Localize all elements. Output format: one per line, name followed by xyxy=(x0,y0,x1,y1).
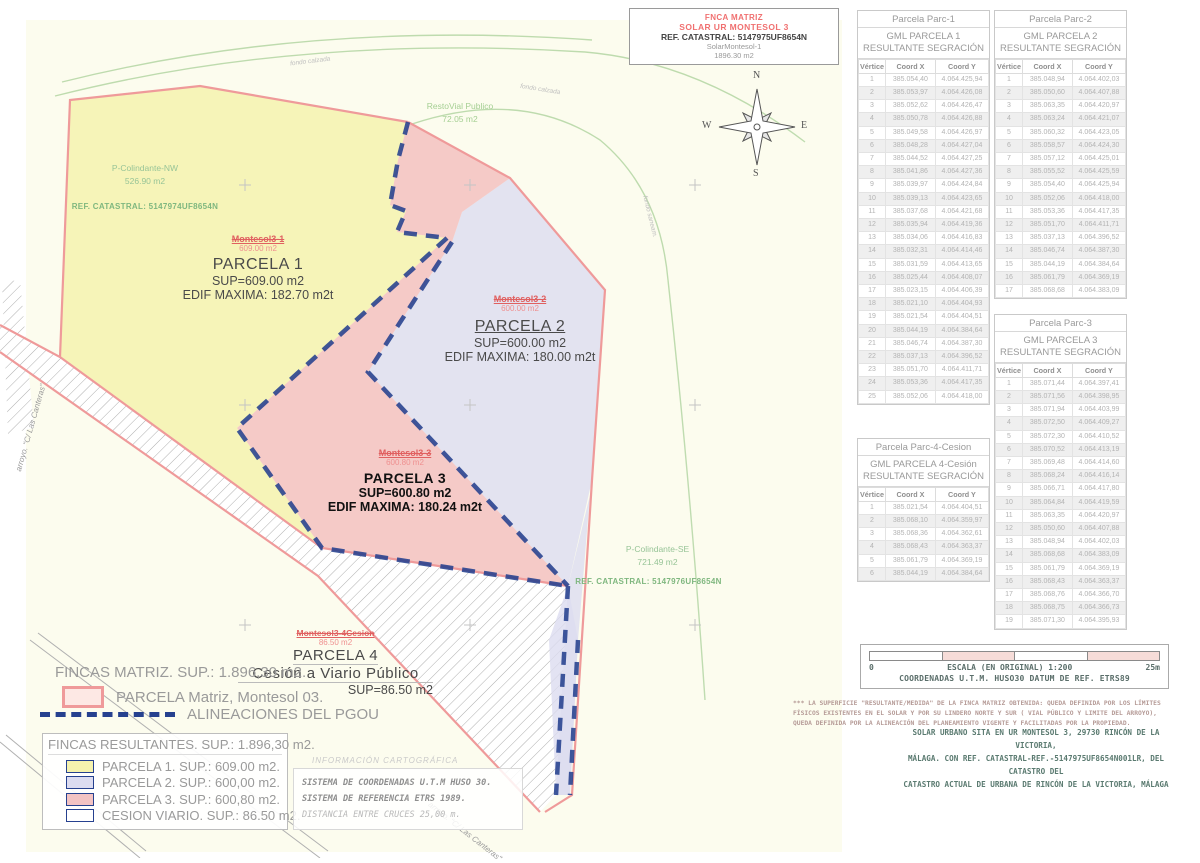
table-cell: 4.064.404,51 xyxy=(935,311,988,324)
table-cell: 385.034,06 xyxy=(885,232,935,245)
colindante-se-label: P-Colindante-SE 721.49 m2 REF. CATASTRAL… xyxy=(585,543,730,586)
table-row: 5385.060,324.064.423,05 xyxy=(996,126,1126,139)
table-cell: 4.064.407,88 xyxy=(1072,86,1125,99)
table-cell: 385.071,56 xyxy=(1022,390,1072,403)
table-cell: 4.064.384,64 xyxy=(1072,258,1125,271)
table-cell: 4.064.402,03 xyxy=(1072,73,1125,86)
scale-zero: 0 xyxy=(869,663,874,672)
table-row: 25385.052,064.064.418,00 xyxy=(859,390,989,403)
coord-table-parc1: Parcela Parc-1GML PARCELA 1 RESULTANTE S… xyxy=(857,10,990,405)
table-cell: 385.063,35 xyxy=(1022,509,1072,522)
table-cell: 4.064.396,52 xyxy=(1072,232,1125,245)
table-row: 5385.049,584.064.426,97 xyxy=(859,126,989,139)
table-cell: 385.048,28 xyxy=(885,139,935,152)
table-cell: 4.064.363,37 xyxy=(935,541,988,554)
parcela-3-label: Montesol3-3 600.80 m2 PARCELA 3 SUP=600.… xyxy=(300,448,510,514)
table-row: 6385.048,284.064.427,04 xyxy=(859,139,989,152)
table-cell: 4.064.402,03 xyxy=(1072,536,1125,549)
table-cell: 385.054,40 xyxy=(885,73,935,86)
table-row: 5385.072,304.064.410,52 xyxy=(996,430,1126,443)
table-cell: 18 xyxy=(996,602,1023,615)
table-cell: 9 xyxy=(996,179,1023,192)
table-row: 1385.071,444.064.397,41 xyxy=(996,377,1126,390)
table-cell: 385.037,13 xyxy=(1022,232,1072,245)
table-cell: 4.064.403,99 xyxy=(1072,404,1125,417)
table-cell: 4.064.404,51 xyxy=(935,501,988,514)
table-cell: 385.044,19 xyxy=(885,324,935,337)
table-cell: 10 xyxy=(996,496,1023,509)
finca-matriz-line1: FNCA MATRIZ xyxy=(632,13,836,22)
table-row: 23385.051,704.064.411,71 xyxy=(859,364,989,377)
table-row: 12385.051,704.064.411,71 xyxy=(996,218,1126,231)
carto-line2: SISTEMA DE REFERENCIA ETRS 1989. xyxy=(302,791,514,807)
table-row: 4385.063,244.064.421,07 xyxy=(996,113,1126,126)
table-row: 13385.048,944.064.402,03 xyxy=(996,536,1126,549)
finca-matriz-line2: SOLAR UR MONTESOL 3 xyxy=(632,22,836,32)
table-row: 19385.021,544.064.404,51 xyxy=(859,311,989,324)
table-cell: 1 xyxy=(996,377,1023,390)
column-header: Vértice xyxy=(859,487,886,501)
parcela2-swatch xyxy=(66,776,94,789)
column-header: Coord Y xyxy=(935,487,988,501)
column-header: Coord X xyxy=(885,59,935,73)
table-cell: 7 xyxy=(859,152,886,165)
table-cell: 385.037,13 xyxy=(885,351,935,364)
table-cell: 17 xyxy=(996,285,1023,298)
table-cell: 385.044,19 xyxy=(1022,258,1072,271)
table-cell: 19 xyxy=(859,311,886,324)
table-cell: 4.064.369,19 xyxy=(1072,271,1125,284)
cesion-swatch xyxy=(66,809,94,822)
table-row: 7385.044,524.064.427,25 xyxy=(859,152,989,165)
table-cell: 8 xyxy=(996,166,1023,179)
table-cell: 22 xyxy=(859,351,886,364)
table-row: 10385.052,064.064.418,00 xyxy=(996,192,1126,205)
column-header: Coord X xyxy=(1022,363,1072,377)
finca-matriz-name: SolarMontesol-1 xyxy=(632,42,836,51)
table-cell: 385.044,52 xyxy=(885,152,935,165)
table-cell: 385.068,10 xyxy=(885,514,935,527)
table-row: 6385.044,194.064.384,64 xyxy=(859,567,989,580)
table-row: 22385.037,134.064.396,52 xyxy=(859,351,989,364)
compass-east-label: E xyxy=(801,120,807,131)
table-cell: 385.054,40 xyxy=(1022,179,1072,192)
table-cell: 15 xyxy=(996,258,1023,271)
plan-sheet: { "title_block": { "line1": "FNCA MATRIZ… xyxy=(0,0,1200,858)
table-cell: 2 xyxy=(996,390,1023,403)
table-cell: 4.064.426,08 xyxy=(935,86,988,99)
table-cell: 4.064.419,59 xyxy=(1072,496,1125,509)
table-cell: 7 xyxy=(996,152,1023,165)
table-cell: 6 xyxy=(859,567,886,580)
carto-info-box: SISTEMA DE COORDENADAS U.T.M HUSO 30. SI… xyxy=(293,768,523,830)
legend-parcela-matriz-row: PARCELA Matriz, Montesol 03. xyxy=(62,686,323,708)
table-row: 2385.071,564.064.398,95 xyxy=(996,390,1126,403)
legend-parcela-matriz-label: PARCELA Matriz, Montesol 03. xyxy=(116,689,323,706)
table-cell: 385.055,52 xyxy=(1022,166,1072,179)
table-row: 8385.055,524.064.425,59 xyxy=(996,166,1126,179)
table-cell: 4.064.397,41 xyxy=(1072,377,1125,390)
table-cell: 4.064.407,88 xyxy=(1072,522,1125,535)
table-cell: 4.064.426,88 xyxy=(935,113,988,126)
table-cell: 385.063,24 xyxy=(1022,113,1072,126)
pgou-dash-sample xyxy=(40,712,175,717)
table-cell: 4.064.366,70 xyxy=(1072,589,1125,602)
table-cell: 385.025,44 xyxy=(885,271,935,284)
table-cell: 3 xyxy=(859,100,886,113)
table-cell: 4.064.424,84 xyxy=(935,179,988,192)
table-cell: 4 xyxy=(996,417,1023,430)
table-cell: 3 xyxy=(996,100,1023,113)
table-cell: 4.064.414,46 xyxy=(935,245,988,258)
table-cell: 4.064.384,64 xyxy=(935,324,988,337)
table-row: 6385.058,574.064.424,30 xyxy=(996,139,1126,152)
table-row: 2385.068,104.064.359,97 xyxy=(859,514,989,527)
table-row: 4385.072,504.064.409,27 xyxy=(996,417,1126,430)
table-row: 16385.025,444.064.408,07 xyxy=(859,271,989,284)
table-cell: 4.064.421,68 xyxy=(935,205,988,218)
parcela-1-label: Montesol3-1 609.00 m2 PARCELA 1 SUP=609.… xyxy=(158,234,358,302)
parcela-2-label: Montesol3-2 600.00 m2 PARCELA 2 SUP=600.… xyxy=(420,294,620,364)
table-row: 3385.071,944.064.403,99 xyxy=(996,404,1126,417)
table-cell: 6 xyxy=(859,139,886,152)
table-cell: 8 xyxy=(996,470,1023,483)
carto-line3: DISTANCIA ENTRE CRUCES 25,00 m. xyxy=(302,807,514,823)
table-row: 4385.050,784.064.426,88 xyxy=(859,113,989,126)
coord-table-parc3: Parcela Parc-3GML PARCELA 3 RESULTANTE S… xyxy=(994,314,1127,630)
table-cell: 4.064.420,97 xyxy=(1072,509,1125,522)
column-header: Vértice xyxy=(996,363,1023,377)
table-cell: 3 xyxy=(859,528,886,541)
table-cell: 4.064.413,19 xyxy=(1072,443,1125,456)
column-header: Coord X xyxy=(1022,59,1072,73)
table-cell: 385.068,68 xyxy=(1022,285,1072,298)
compass-south-label: S xyxy=(753,168,759,179)
table-cell: 4.064.425,94 xyxy=(1072,179,1125,192)
table-cell: 15 xyxy=(859,258,886,271)
table-cell: 14 xyxy=(859,245,886,258)
table-cell: 4.064.420,97 xyxy=(1072,100,1125,113)
table-row: 1385.048,944.064.402,03 xyxy=(996,73,1126,86)
column-header: Coord Y xyxy=(1072,363,1125,377)
legend-item-parcela1: PARCELA 1. SUP.: 609.00 m2. xyxy=(48,758,282,775)
table-cell: 385.053,97 xyxy=(885,86,935,99)
scale-label: ESCALA (EN ORIGINAL) 1:200 xyxy=(947,663,1072,672)
table-cell: 385.044,19 xyxy=(885,567,935,580)
table-row: 8385.041,864.064.427,36 xyxy=(859,166,989,179)
table-cell: 4.064.383,09 xyxy=(1072,549,1125,562)
note-superficie: *** LA SUPERFICIE "RESULTANTE/MEDIDA" DE… xyxy=(793,699,1171,728)
column-header: Coord X xyxy=(885,487,935,501)
table-row: 3385.068,364.064.362,61 xyxy=(859,528,989,541)
compass-west-label: W xyxy=(702,120,711,131)
table-row: 13385.034,064.064.416,83 xyxy=(859,232,989,245)
finca-matriz-area: 1896.30 m2 xyxy=(632,51,836,60)
table-cell: 4.064.417,35 xyxy=(1072,205,1125,218)
table-cell: 4.064.387,30 xyxy=(935,337,988,350)
table-cell: 10 xyxy=(859,192,886,205)
table-cell: 385.057,12 xyxy=(1022,152,1072,165)
legend-resultantes-box: FINCAS RESULTANTES. SUP.: 1.896,30 m2. P… xyxy=(42,733,288,830)
table-cell: 4.064.366,73 xyxy=(1072,602,1125,615)
legend-alineaciones-row: ALINEACIONES DEL PGOU xyxy=(40,706,379,723)
table-cell: 4.064.404,93 xyxy=(935,298,988,311)
table-row: 18385.021,104.064.404,93 xyxy=(859,298,989,311)
table-cell: 4.064.369,19 xyxy=(935,554,988,567)
scale-bar xyxy=(869,651,1160,661)
table-cell: 4.064.425,59 xyxy=(1072,166,1125,179)
table-cell: 4.064.427,36 xyxy=(935,166,988,179)
table-cell: 385.050,60 xyxy=(1022,86,1072,99)
table-cell: 385.068,68 xyxy=(1022,549,1072,562)
table-cell: 4 xyxy=(859,113,886,126)
table-cell: 385.046,74 xyxy=(1022,245,1072,258)
table-cell: 385.050,60 xyxy=(1022,522,1072,535)
table-row: 10385.039,134.064.423,65 xyxy=(859,192,989,205)
table-cell: 4.064.359,97 xyxy=(935,514,988,527)
table-cell: 25 xyxy=(859,390,886,403)
carto-line1: SISTEMA DE COORDENADAS U.T.M HUSO 30. xyxy=(302,775,514,791)
note-solar-urbano: SOLAR URBANO SITA EN UR MONTESOL 3, 2973… xyxy=(900,727,1172,792)
table-cell: 385.060,32 xyxy=(1022,126,1072,139)
table-row: 24385.053,364.064.417,35 xyxy=(859,377,989,390)
table-cell: 15 xyxy=(996,562,1023,575)
table-cell: 12 xyxy=(996,218,1023,231)
table-cell: 385.021,54 xyxy=(885,311,935,324)
table-cell: 14 xyxy=(996,549,1023,562)
table-cell: 4.064.421,07 xyxy=(1072,113,1125,126)
table-cell: 4.064.395,93 xyxy=(1072,615,1125,628)
table-cell: 13 xyxy=(996,232,1023,245)
table-row: 19385.071,304.064.395,93 xyxy=(996,615,1126,628)
table-cell: 11 xyxy=(996,509,1023,522)
table-cell: 385.058,57 xyxy=(1022,139,1072,152)
table-row: 13385.037,134.064.396,52 xyxy=(996,232,1126,245)
table-cell: 4.064.416,83 xyxy=(935,232,988,245)
table-cell: 1 xyxy=(996,73,1023,86)
table-cell: 1 xyxy=(859,501,886,514)
compass-north-label: N xyxy=(753,70,760,81)
table-cell: 4.064.387,30 xyxy=(1072,245,1125,258)
table-cell: 385.068,24 xyxy=(1022,470,1072,483)
table-row: 12385.035,944.064.419,36 xyxy=(859,218,989,231)
table-cell: 385.032,31 xyxy=(885,245,935,258)
table-cell: 385.052,62 xyxy=(885,100,935,113)
table-cell: 385.039,97 xyxy=(885,179,935,192)
coord-table-parc2: Parcela Parc-2GML PARCELA 2 RESULTANTE S… xyxy=(994,10,1127,299)
table-cell: 3 xyxy=(996,404,1023,417)
scale-max: 25m xyxy=(1146,663,1160,672)
table-cell: 6 xyxy=(996,443,1023,456)
table-cell: 4.064.363,37 xyxy=(1072,575,1125,588)
table-cell: 2 xyxy=(859,514,886,527)
table-cell: 385.061,79 xyxy=(1022,271,1072,284)
table-cell: 385.068,36 xyxy=(885,528,935,541)
table-cell: 8 xyxy=(859,166,886,179)
table-row: 14385.046,744.064.387,30 xyxy=(996,245,1126,258)
table-row: 15385.044,194.064.384,64 xyxy=(996,258,1126,271)
legend-alineaciones-label: ALINEACIONES DEL PGOU xyxy=(187,706,379,723)
table-cell: 4 xyxy=(996,113,1023,126)
table-cell: 385.070,52 xyxy=(1022,443,1072,456)
table-row: 9385.066,714.064.417,80 xyxy=(996,483,1126,496)
table-row: 2385.050,604.064.407,88 xyxy=(996,86,1126,99)
table-cell: 4.064.424,30 xyxy=(1072,139,1125,152)
table-cell: 5 xyxy=(859,554,886,567)
legend-item-parcela3: PARCELA 3. SUP.: 600,80 m2. xyxy=(48,791,282,808)
table-cell: 5 xyxy=(859,126,886,139)
table-cell: 385.061,79 xyxy=(1022,562,1072,575)
table-row: 21385.046,744.064.387,30 xyxy=(859,337,989,350)
table-cell: 385.049,58 xyxy=(885,126,935,139)
site-plan-map xyxy=(0,0,858,858)
table-cell: 11 xyxy=(996,205,1023,218)
scale-coords: COORDENADAS U.T.M. HUSO30 DATUM DE REF. … xyxy=(869,674,1160,683)
table-cell: 2 xyxy=(859,86,886,99)
table-cell: 18 xyxy=(859,298,886,311)
table-cell: 4.064.414,60 xyxy=(1072,456,1125,469)
table-cell: 21 xyxy=(859,337,886,350)
table-row: 15385.031,594.064.413,65 xyxy=(859,258,989,271)
table-row: 16385.061,794.064.369,19 xyxy=(996,271,1126,284)
table-cell: 4.064.417,35 xyxy=(935,377,988,390)
table-cell: 385.061,79 xyxy=(885,554,935,567)
table-cell: 4.064.406,39 xyxy=(935,285,988,298)
legend-resultantes-title: FINCAS RESULTANTES. SUP.: 1.896,30 m2. xyxy=(48,737,282,755)
table-cell: 4.064.396,52 xyxy=(935,351,988,364)
table-cell: 385.031,59 xyxy=(885,258,935,271)
table-cell: 385.050,78 xyxy=(885,113,935,126)
table-cell: 4.064.425,01 xyxy=(1072,152,1125,165)
table-cell: 5 xyxy=(996,126,1023,139)
table-cell: 16 xyxy=(996,575,1023,588)
table-cell: 385.021,54 xyxy=(885,501,935,514)
table-cell: 4.064.410,52 xyxy=(1072,430,1125,443)
table-cell: 12 xyxy=(859,218,886,231)
table-row: 10385.064,844.064.419,59 xyxy=(996,496,1126,509)
column-header: Vértice xyxy=(996,59,1023,73)
table-cell: 9 xyxy=(996,483,1023,496)
table-cell: 385.063,35 xyxy=(1022,100,1072,113)
table-row: 17385.068,764.064.366,70 xyxy=(996,589,1126,602)
coord-table-parc4: Parcela Parc-4-CesionGML PARCELA 4-Cesió… xyxy=(857,438,990,582)
legend-item-parcela2: PARCELA 2. SUP.: 600,00 m2. xyxy=(48,775,282,792)
table-cell: 385.041,86 xyxy=(885,166,935,179)
table-cell: 19 xyxy=(996,615,1023,628)
table-cell: 1 xyxy=(859,73,886,86)
table-cell: 4.064.419,36 xyxy=(935,218,988,231)
table-cell: 20 xyxy=(859,324,886,337)
table-cell: 13 xyxy=(859,232,886,245)
table-cell: 385.064,84 xyxy=(1022,496,1072,509)
table-row: 2385.053,974.064.426,08 xyxy=(859,86,989,99)
table-cell: 385.023,15 xyxy=(885,285,935,298)
table-row: 9385.054,404.064.425,94 xyxy=(996,179,1126,192)
table-row: 5385.061,794.064.369,19 xyxy=(859,554,989,567)
table-cell: 4.064.426,97 xyxy=(935,126,988,139)
table-cell: 4.064.411,71 xyxy=(1072,218,1125,231)
table-cell: 4.064.425,94 xyxy=(935,73,988,86)
table-cell: 385.071,30 xyxy=(1022,615,1072,628)
table-cell: 14 xyxy=(996,245,1023,258)
table-cell: 4.064.423,65 xyxy=(935,192,988,205)
table-cell: 385.068,75 xyxy=(1022,602,1072,615)
table-row: 8385.068,244.064.416,14 xyxy=(996,470,1126,483)
table-cell: 4.064.383,09 xyxy=(1072,285,1125,298)
table-cell: 17 xyxy=(859,285,886,298)
table-cell: 4.064.427,04 xyxy=(935,139,988,152)
table-cell: 7 xyxy=(996,456,1023,469)
table-row: 17385.068,684.064.383,09 xyxy=(996,285,1126,298)
table-row: 3385.063,354.064.420,97 xyxy=(996,100,1126,113)
table-row: 7385.057,124.064.425,01 xyxy=(996,152,1126,165)
table-cell: 4.064.413,65 xyxy=(935,258,988,271)
table-cell: 385.071,44 xyxy=(1022,377,1072,390)
table-row: 11385.053,364.064.417,35 xyxy=(996,205,1126,218)
table-cell: 16 xyxy=(859,271,886,284)
table-cell: 4.064.362,61 xyxy=(935,528,988,541)
table-cell: 9 xyxy=(859,179,886,192)
table-row: 4385.068,434.064.363,37 xyxy=(859,541,989,554)
table-row: 11385.063,354.064.420,97 xyxy=(996,509,1126,522)
table-cell: 23 xyxy=(859,364,886,377)
table-cell: 4.064.384,64 xyxy=(935,567,988,580)
table-cell: 4.064.418,00 xyxy=(935,390,988,403)
finca-matriz-ref: REF. CATASTRAL: 5147975UF8654N xyxy=(632,32,836,42)
table-cell: 385.051,70 xyxy=(885,364,935,377)
table-cell: 385.048,94 xyxy=(1022,73,1072,86)
table-cell: 4.064.398,95 xyxy=(1072,390,1125,403)
table-cell: 5 xyxy=(996,430,1023,443)
table-cell: 385.035,94 xyxy=(885,218,935,231)
legend-item-cesion: CESION VIARIO. SUP.: 86.50 m2. xyxy=(48,808,282,825)
table-cell: 4.064.369,19 xyxy=(1072,562,1125,575)
table-cell: 11 xyxy=(859,205,886,218)
table-cell: 13 xyxy=(996,536,1023,549)
table-cell: 385.068,43 xyxy=(1022,575,1072,588)
table-cell: 385.037,68 xyxy=(885,205,935,218)
table-row: 9385.039,974.064.424,84 xyxy=(859,179,989,192)
column-header: Vértice xyxy=(859,59,886,73)
table-cell: 385.039,13 xyxy=(885,192,935,205)
table-cell: 4 xyxy=(859,541,886,554)
table-cell: 12 xyxy=(996,522,1023,535)
column-header: Coord Y xyxy=(1072,59,1125,73)
table-cell: 4.064.426,47 xyxy=(935,100,988,113)
scale-bar-box: 0 ESCALA (EN ORIGINAL) 1:200 25m COORDEN… xyxy=(860,644,1169,689)
finca-matriz-title-box: FNCA MATRIZ SOLAR UR MONTESOL 3 REF. CAT… xyxy=(629,8,839,65)
table-row: 14385.068,684.064.383,09 xyxy=(996,549,1126,562)
table-cell: 385.053,36 xyxy=(885,377,935,390)
table-row: 20385.044,194.064.384,64 xyxy=(859,324,989,337)
table-cell: 385.053,36 xyxy=(1022,205,1072,218)
table-cell: 385.046,74 xyxy=(885,337,935,350)
table-row: 16385.068,434.064.363,37 xyxy=(996,575,1126,588)
table-cell: 4.064.409,27 xyxy=(1072,417,1125,430)
table-cell: 385.066,71 xyxy=(1022,483,1072,496)
table-cell: 17 xyxy=(996,589,1023,602)
table-row: 14385.032,314.064.414,46 xyxy=(859,245,989,258)
table-cell: 385.071,94 xyxy=(1022,404,1072,417)
table-row: 7385.069,484.064.414,60 xyxy=(996,456,1126,469)
table-row: 17385.023,154.064.406,39 xyxy=(859,285,989,298)
table-row: 1385.021,544.064.404,51 xyxy=(859,501,989,514)
table-cell: 385.052,06 xyxy=(885,390,935,403)
table-cell: 4.064.418,00 xyxy=(1072,192,1125,205)
table-cell: 385.072,30 xyxy=(1022,430,1072,443)
table-row: 11385.037,684.064.421,68 xyxy=(859,205,989,218)
table-cell: 385.068,76 xyxy=(1022,589,1072,602)
